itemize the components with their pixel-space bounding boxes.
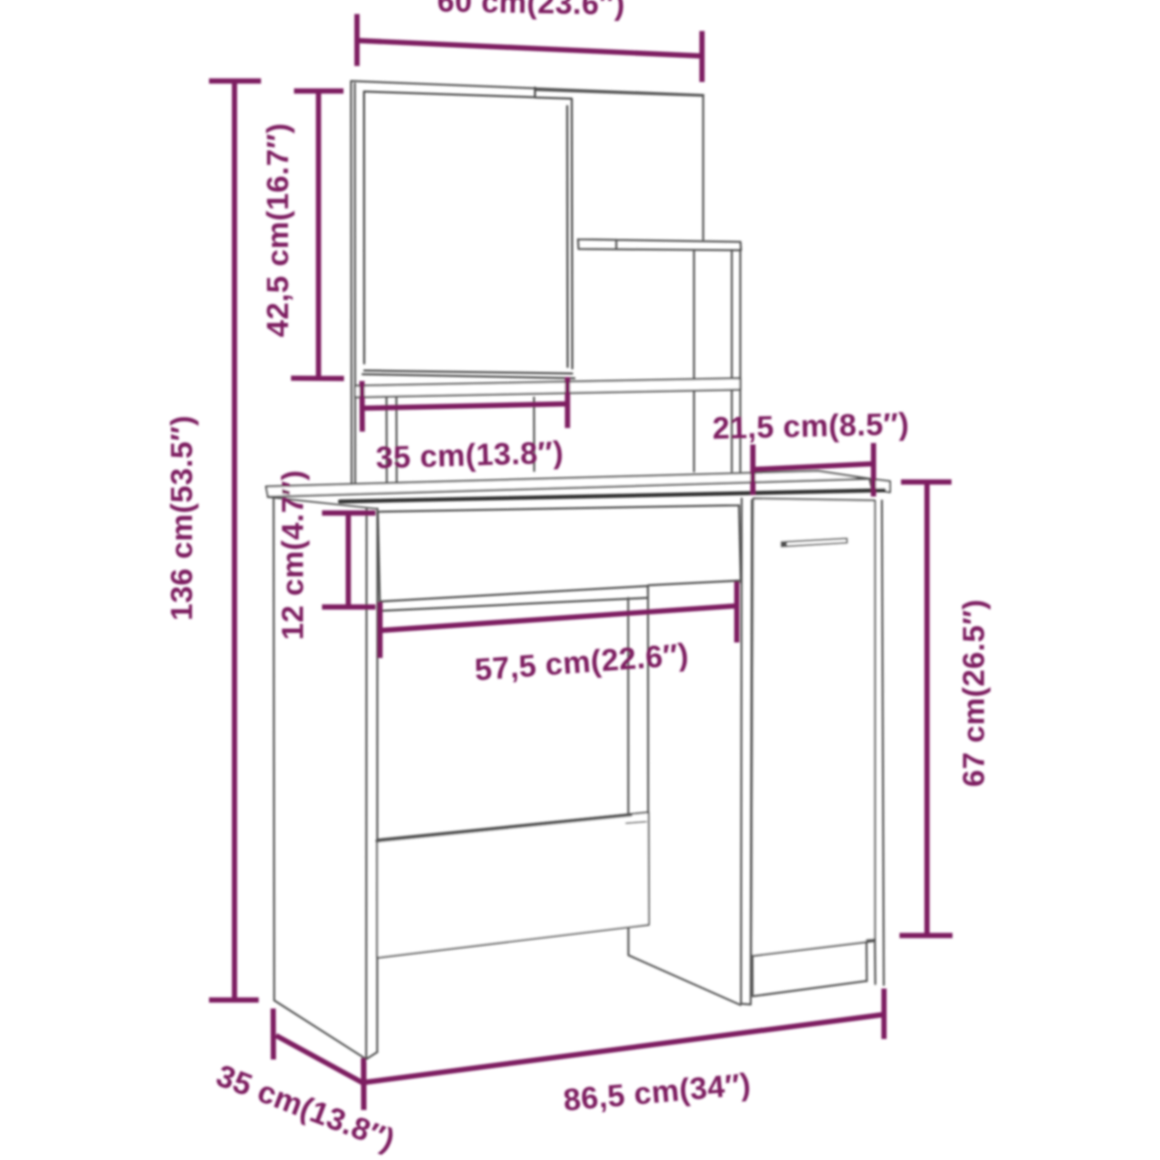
- svg-text:42,5 cm(16.7″): 42,5 cm(16.7″): [260, 123, 295, 337]
- svg-text:136 cm(53.5″): 136 cm(53.5″): [164, 415, 199, 621]
- svg-text:21,5 cm(8.5″): 21,5 cm(8.5″): [712, 406, 910, 445]
- svg-text:35 cm(13.8″): 35 cm(13.8″): [212, 1058, 400, 1158]
- svg-text:60 cm(23.6″): 60 cm(23.6″): [437, 0, 626, 22]
- svg-text:67 cm(26.5″): 67 cm(26.5″): [956, 599, 991, 787]
- svg-text:12 cm(4.7″): 12 cm(4.7″): [275, 470, 310, 640]
- svg-text:35 cm(13.8″): 35 cm(13.8″): [375, 435, 564, 476]
- svg-text:86,5 cm(34″): 86,5 cm(34″): [562, 1066, 752, 1117]
- svg-text:57,5 cm(22.6″): 57,5 cm(22.6″): [473, 637, 689, 688]
